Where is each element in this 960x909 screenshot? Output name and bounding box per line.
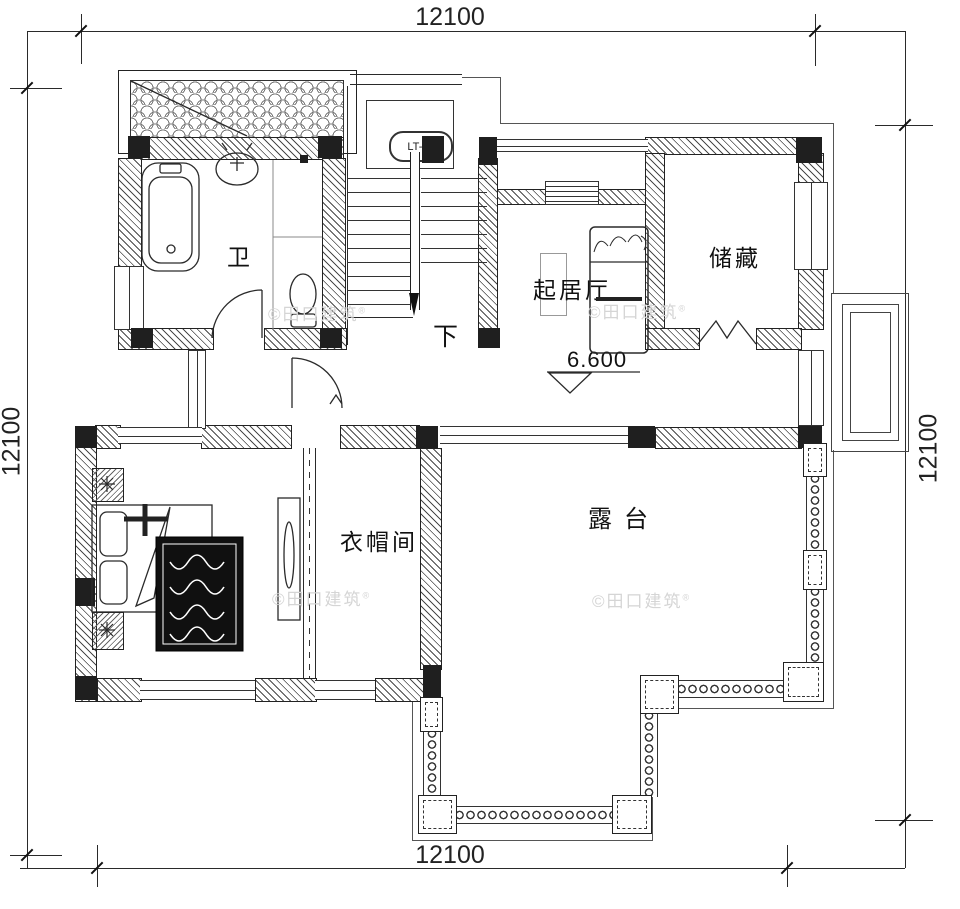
stair-direction-text: 下 bbox=[433, 317, 461, 353]
partition-line bbox=[315, 448, 316, 678]
terrace-edge-line bbox=[412, 840, 653, 841]
column bbox=[423, 665, 441, 698]
plant-stand bbox=[92, 468, 124, 502]
column bbox=[320, 328, 342, 348]
watermark-text: ©田口建筑 bbox=[268, 305, 359, 324]
railing bbox=[676, 680, 784, 698]
wardrobe-handle bbox=[284, 522, 294, 588]
wall-segment bbox=[655, 427, 802, 449]
column bbox=[479, 137, 497, 165]
tiled-roof bbox=[130, 80, 344, 139]
railing bbox=[806, 473, 824, 552]
stair-treads bbox=[347, 165, 413, 318]
window bbox=[798, 350, 824, 426]
watermark-registered: ® bbox=[363, 590, 372, 600]
column bbox=[416, 426, 438, 448]
column bbox=[128, 136, 150, 158]
window bbox=[315, 680, 375, 700]
plant-stand bbox=[92, 612, 124, 650]
partition-dashed-line bbox=[309, 448, 310, 678]
watermark-text: ©田口建筑 bbox=[588, 303, 679, 322]
dim-label-bottom: 12100 bbox=[398, 841, 502, 870]
terrace-edge-line bbox=[412, 697, 413, 840]
window bbox=[440, 426, 628, 444]
column bbox=[300, 155, 308, 163]
elevation-value: 6.600 bbox=[567, 347, 627, 373]
terrace-edge-line bbox=[652, 708, 834, 709]
wall-segment bbox=[201, 425, 292, 449]
room-label-terrace: 露台 bbox=[588, 499, 660, 534]
elevation-symbol bbox=[547, 372, 640, 393]
bathtub-rim bbox=[149, 177, 192, 263]
column bbox=[75, 426, 97, 448]
window bbox=[188, 350, 206, 429]
bifold-door bbox=[698, 321, 756, 344]
dim-label-top: 12100 bbox=[398, 3, 502, 32]
window bbox=[794, 182, 828, 270]
watermark: ©田口建筑® bbox=[272, 585, 371, 610]
window bbox=[140, 680, 255, 700]
dim-extension-line bbox=[81, 14, 82, 64]
column bbox=[131, 328, 153, 348]
entry-steps bbox=[545, 181, 599, 205]
eave-line bbox=[462, 77, 501, 78]
eave-line bbox=[350, 84, 462, 85]
bay-window-glass bbox=[850, 312, 891, 433]
stair-handrail bbox=[410, 152, 420, 310]
column bbox=[75, 676, 97, 700]
wall-segment bbox=[255, 678, 317, 702]
eave-line bbox=[350, 74, 462, 75]
dim-label-right: 12100 bbox=[915, 397, 944, 501]
wall-segment bbox=[340, 425, 420, 449]
bathtub bbox=[142, 163, 199, 271]
watermark-registered: ® bbox=[679, 303, 688, 313]
column bbox=[478, 328, 500, 348]
railing-post bbox=[612, 795, 652, 834]
dim-extension-line bbox=[10, 88, 62, 89]
pillow bbox=[100, 512, 127, 556]
bed-quilt-cross bbox=[124, 504, 168, 536]
watermark-registered: ® bbox=[683, 592, 692, 602]
sofa-cushions bbox=[594, 235, 646, 252]
watermark-text: ©田口建筑 bbox=[592, 592, 683, 611]
railing bbox=[423, 728, 441, 797]
wall-segment bbox=[645, 328, 700, 350]
eave-line bbox=[833, 123, 834, 293]
railing-post bbox=[418, 795, 457, 834]
railing-post bbox=[420, 697, 443, 732]
door-arc bbox=[212, 290, 262, 338]
railing bbox=[454, 806, 613, 824]
eave-line bbox=[500, 123, 834, 124]
railing bbox=[640, 710, 658, 797]
wall-segment bbox=[756, 328, 802, 350]
stair-treads bbox=[421, 165, 487, 266]
partition-line bbox=[303, 448, 304, 678]
dim-extension-line bbox=[815, 14, 816, 66]
railing-post bbox=[640, 675, 679, 714]
pillow bbox=[100, 561, 127, 604]
eave-line bbox=[500, 77, 501, 123]
railing-post bbox=[803, 443, 827, 477]
wall-segment bbox=[128, 137, 344, 160]
column bbox=[628, 426, 655, 448]
watermark-text: ©田口建筑 bbox=[272, 590, 363, 609]
watermark: ©田口建筑® bbox=[268, 300, 367, 325]
column bbox=[75, 578, 95, 606]
window bbox=[118, 427, 202, 444]
railing-post bbox=[783, 662, 824, 702]
dim-label-left: 12100 bbox=[0, 390, 27, 494]
wall-segment bbox=[645, 137, 800, 155]
room-label-storage: 储藏 bbox=[709, 239, 761, 273]
column bbox=[422, 136, 444, 163]
window bbox=[497, 139, 648, 152]
room-label-bedroom: 卧室 bbox=[163, 532, 215, 566]
wall-segment bbox=[97, 678, 142, 702]
window bbox=[114, 266, 144, 330]
dim-line-left bbox=[27, 31, 28, 868]
watermark-registered: ® bbox=[359, 305, 368, 315]
wall-segment bbox=[420, 448, 442, 670]
floor-plan-canvas: 12100 12100 12100 12100 bbox=[0, 0, 960, 909]
railing-post bbox=[803, 550, 827, 590]
room-label-bathroom: 卫 bbox=[227, 238, 253, 272]
terrace-edge-line bbox=[833, 450, 834, 708]
watermark: ©田口建筑® bbox=[592, 587, 691, 612]
bathtub-faucet bbox=[160, 164, 181, 173]
column bbox=[318, 136, 342, 158]
dim-extension-line bbox=[10, 855, 62, 856]
railing bbox=[806, 586, 824, 664]
watermark: ©田口建筑® bbox=[588, 298, 687, 323]
door-arc bbox=[292, 358, 342, 408]
column bbox=[796, 137, 822, 163]
room-label-cloakroom: 衣帽间 bbox=[340, 523, 418, 557]
bathtub-drain bbox=[167, 245, 175, 253]
